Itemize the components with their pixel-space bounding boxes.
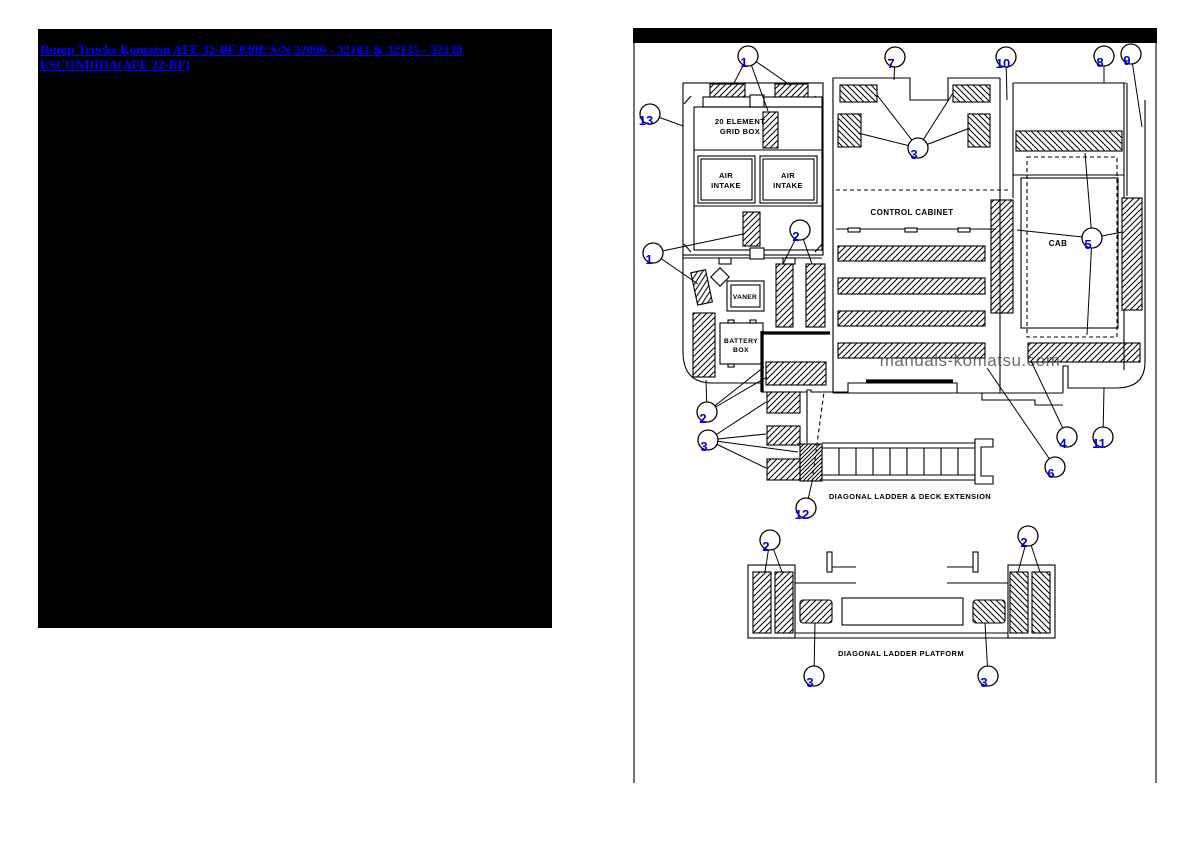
deck-arrangement-diagram: 20 ELEMENT GRID BOX AIR INTAKE AIR INTAK… <box>633 28 1157 784</box>
svg-text:3: 3 <box>806 675 813 690</box>
watermark-text: manuals-komatsu.com <box>880 351 1061 370</box>
callout-6: 6 <box>987 368 1065 481</box>
air-intake-right-label: AIR <box>781 171 795 180</box>
svg-text:3: 3 <box>700 439 707 454</box>
battery-box-label2: BOX <box>733 347 749 354</box>
callout-13: 13 <box>639 104 683 128</box>
grid-box-label: 20 ELEMENT <box>715 117 765 126</box>
battery-box-label: BATTERY <box>724 338 758 345</box>
platform-caption: DIAGONAL LADDER PLATFORM <box>838 649 964 658</box>
air-intake-right-label2: INTAKE <box>773 181 803 190</box>
grid-box-label2: GRID BOX <box>720 127 760 136</box>
svg-text:8: 8 <box>1096 55 1103 70</box>
callout-8: 8 <box>1094 46 1114 83</box>
callout-4: 4 <box>1031 361 1077 451</box>
svg-text:12: 12 <box>795 507 809 522</box>
air-intake-left-label: AIR <box>719 171 733 180</box>
callout-2-platform-left: 2 <box>760 530 782 572</box>
callout-11: 11 <box>1092 388 1113 451</box>
callout-3-mid: 3 <box>858 93 970 162</box>
page: { "left_panel": { "link_text": "Dump Tru… <box>0 0 1190 842</box>
extension-caption: DIAGONAL LADDER & DECK EXTENSION <box>829 492 991 501</box>
callout-12: 12 <box>795 478 816 522</box>
svg-text:7: 7 <box>887 56 894 71</box>
ladder-rungs <box>839 448 958 475</box>
svg-text:2: 2 <box>1020 535 1027 550</box>
control-cabinet-label: CONTROL CABINET <box>870 208 953 217</box>
cab-label: CAB <box>1049 239 1068 248</box>
svg-text:1: 1 <box>740 55 747 70</box>
diagram-panel: 20 ELEMENT GRID BOX AIR INTAKE AIR INTAK… <box>633 28 1157 784</box>
svg-text:2: 2 <box>762 539 769 554</box>
callout-2-grid: 2 <box>783 220 812 264</box>
vaner-label: VANER <box>733 294 757 301</box>
svg-text:10: 10 <box>996 56 1010 71</box>
svg-text:11: 11 <box>1092 436 1106 451</box>
svg-text:2: 2 <box>792 229 799 244</box>
svg-text:5: 5 <box>1084 237 1091 252</box>
manual-title-link[interactable]: Dump Trucks Komatsu AFE 32-BF 830E S/N 3… <box>40 42 548 72</box>
air-intake-left-label2: INTAKE <box>711 181 741 190</box>
panel-top-bar <box>633 28 1157 43</box>
svg-text:13: 13 <box>639 113 653 128</box>
svg-text:3: 3 <box>910 147 917 162</box>
svg-text:1: 1 <box>645 252 652 267</box>
svg-text:9: 9 <box>1123 53 1130 68</box>
svg-text:3: 3 <box>980 675 987 690</box>
control-cabinet-module: CONTROL CABINET <box>833 78 1013 393</box>
svg-text:6: 6 <box>1047 466 1054 481</box>
svg-text:2: 2 <box>699 411 706 426</box>
callout-5: 5 <box>1017 153 1122 335</box>
callout-7: 7 <box>885 47 905 80</box>
battery-vaner-section: VANER BATTERY BOX <box>683 255 830 392</box>
ladder-platform-view: DIAGONAL LADDER PLATFORM <box>748 552 1055 658</box>
svg-text:4: 4 <box>1059 436 1067 451</box>
left-black-panel: Dump Trucks Komatsu AFE 32-BF 830E S/N 3… <box>38 29 552 628</box>
